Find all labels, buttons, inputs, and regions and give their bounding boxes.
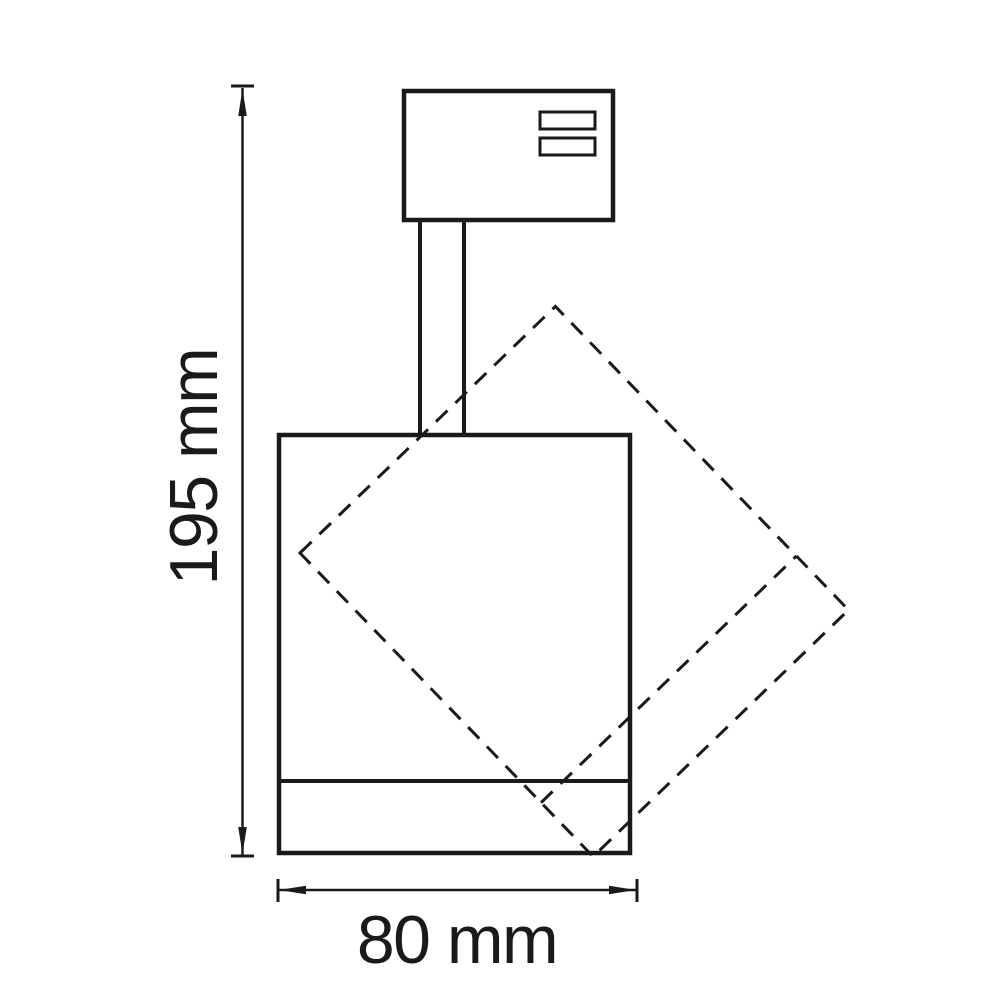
height-arrow-up-icon — [238, 89, 247, 116]
height-arrow-down-icon — [238, 827, 247, 854]
technical-drawing-canvas: 195 mm 80 mm — [0, 0, 1000, 1000]
lamp-body-outline — [279, 435, 630, 853]
width-arrow-left-icon — [279, 886, 306, 894]
dimension-arrowheads — [238, 89, 636, 894]
width-dimension-label: 80 mm — [357, 902, 557, 978]
track-spotlight-dimension-drawing: 195 mm 80 mm — [0, 0, 1000, 1000]
width-arrow-right-icon — [609, 886, 636, 894]
outline-strokes — [231, 86, 849, 902]
rotation-range-outline — [300, 306, 849, 856]
rotation-range-trim-line — [541, 556, 796, 803]
height-dimension-label: 195 mm — [156, 349, 232, 586]
rotation-range — [300, 306, 849, 856]
height-dimension — [231, 86, 254, 856]
width-dimension — [278, 879, 637, 902]
adapter-contact-slot-top — [540, 112, 595, 129]
adapter-contact-slot-bottom — [540, 138, 595, 155]
